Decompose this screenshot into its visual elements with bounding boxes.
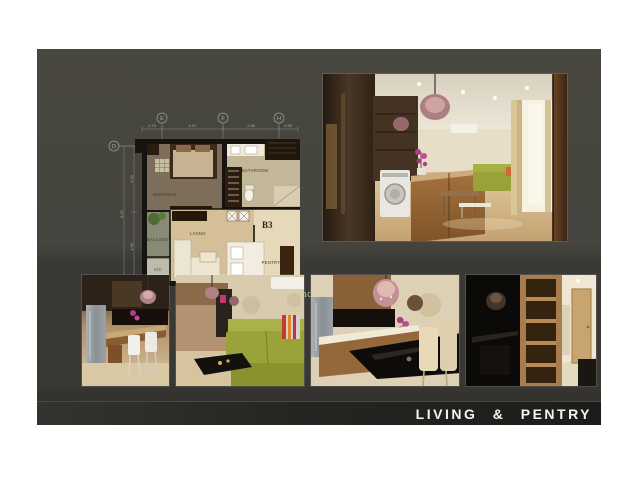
grid-letter-e: E <box>160 116 164 122</box>
main-photo-art <box>323 74 568 242</box>
thumb-photo-green-sofa <box>175 274 305 387</box>
floorplan-drawing: E F H D C 0.75 3.10 2.85 0.95 3.50 1.95 … <box>97 107 327 289</box>
footer-bar: LIVING & PENTRY <box>37 401 601 425</box>
hallway <box>562 275 597 387</box>
grid-letter-d: D <box>112 144 116 150</box>
wooden-shelf-unit <box>520 275 562 387</box>
thumb-photo-kitchen-dining <box>81 274 170 387</box>
footer-title: LIVING & PENTRY <box>416 406 601 422</box>
grid-letter-h: H <box>277 116 281 122</box>
floorplan-body: BEDROOM BATHROOM LIVING BALCONY A/C PENT… <box>135 139 300 289</box>
thumb4-art <box>466 275 597 387</box>
dim-left-total: 6.45 <box>119 210 124 218</box>
main-photo-living-room <box>322 73 568 242</box>
thumb-photo-shelving-hallway <box>465 274 597 387</box>
thumb2-art <box>176 275 305 387</box>
thumb1-art <box>82 275 170 387</box>
dim-left-2: 1.95 <box>129 243 134 251</box>
room-label-pantry: PENTRY <box>262 260 281 265</box>
grid-letter-f: F <box>221 116 225 122</box>
room-label-bathroom: BATHROOM <box>242 168 268 173</box>
thumb3-art <box>311 275 460 387</box>
room-label-living: LIVING <box>190 231 206 236</box>
room-label-balcony: BALCONY <box>147 237 169 242</box>
slide-panel: E F H D C 0.75 3.10 2.85 0.95 3.50 1.95 … <box>37 49 601 424</box>
room-label-bedroom: BEDROOM <box>153 192 177 197</box>
unit-label: B3 <box>262 220 273 230</box>
dim-top-3: 2.85 <box>247 123 255 128</box>
room-label-ac: A/C <box>154 267 162 272</box>
striped-pillow <box>282 315 300 339</box>
thumb-photo-breakfast-bar <box>310 274 460 387</box>
slide-page: E F H D C 0.75 3.10 2.85 0.95 3.50 1.95 … <box>0 0 640 480</box>
dim-top-2: 3.10 <box>188 123 196 128</box>
dim-top-4: 0.95 <box>284 123 292 128</box>
dim-left-1: 3.50 <box>129 174 134 182</box>
dim-top-1: 0.75 <box>148 123 156 128</box>
